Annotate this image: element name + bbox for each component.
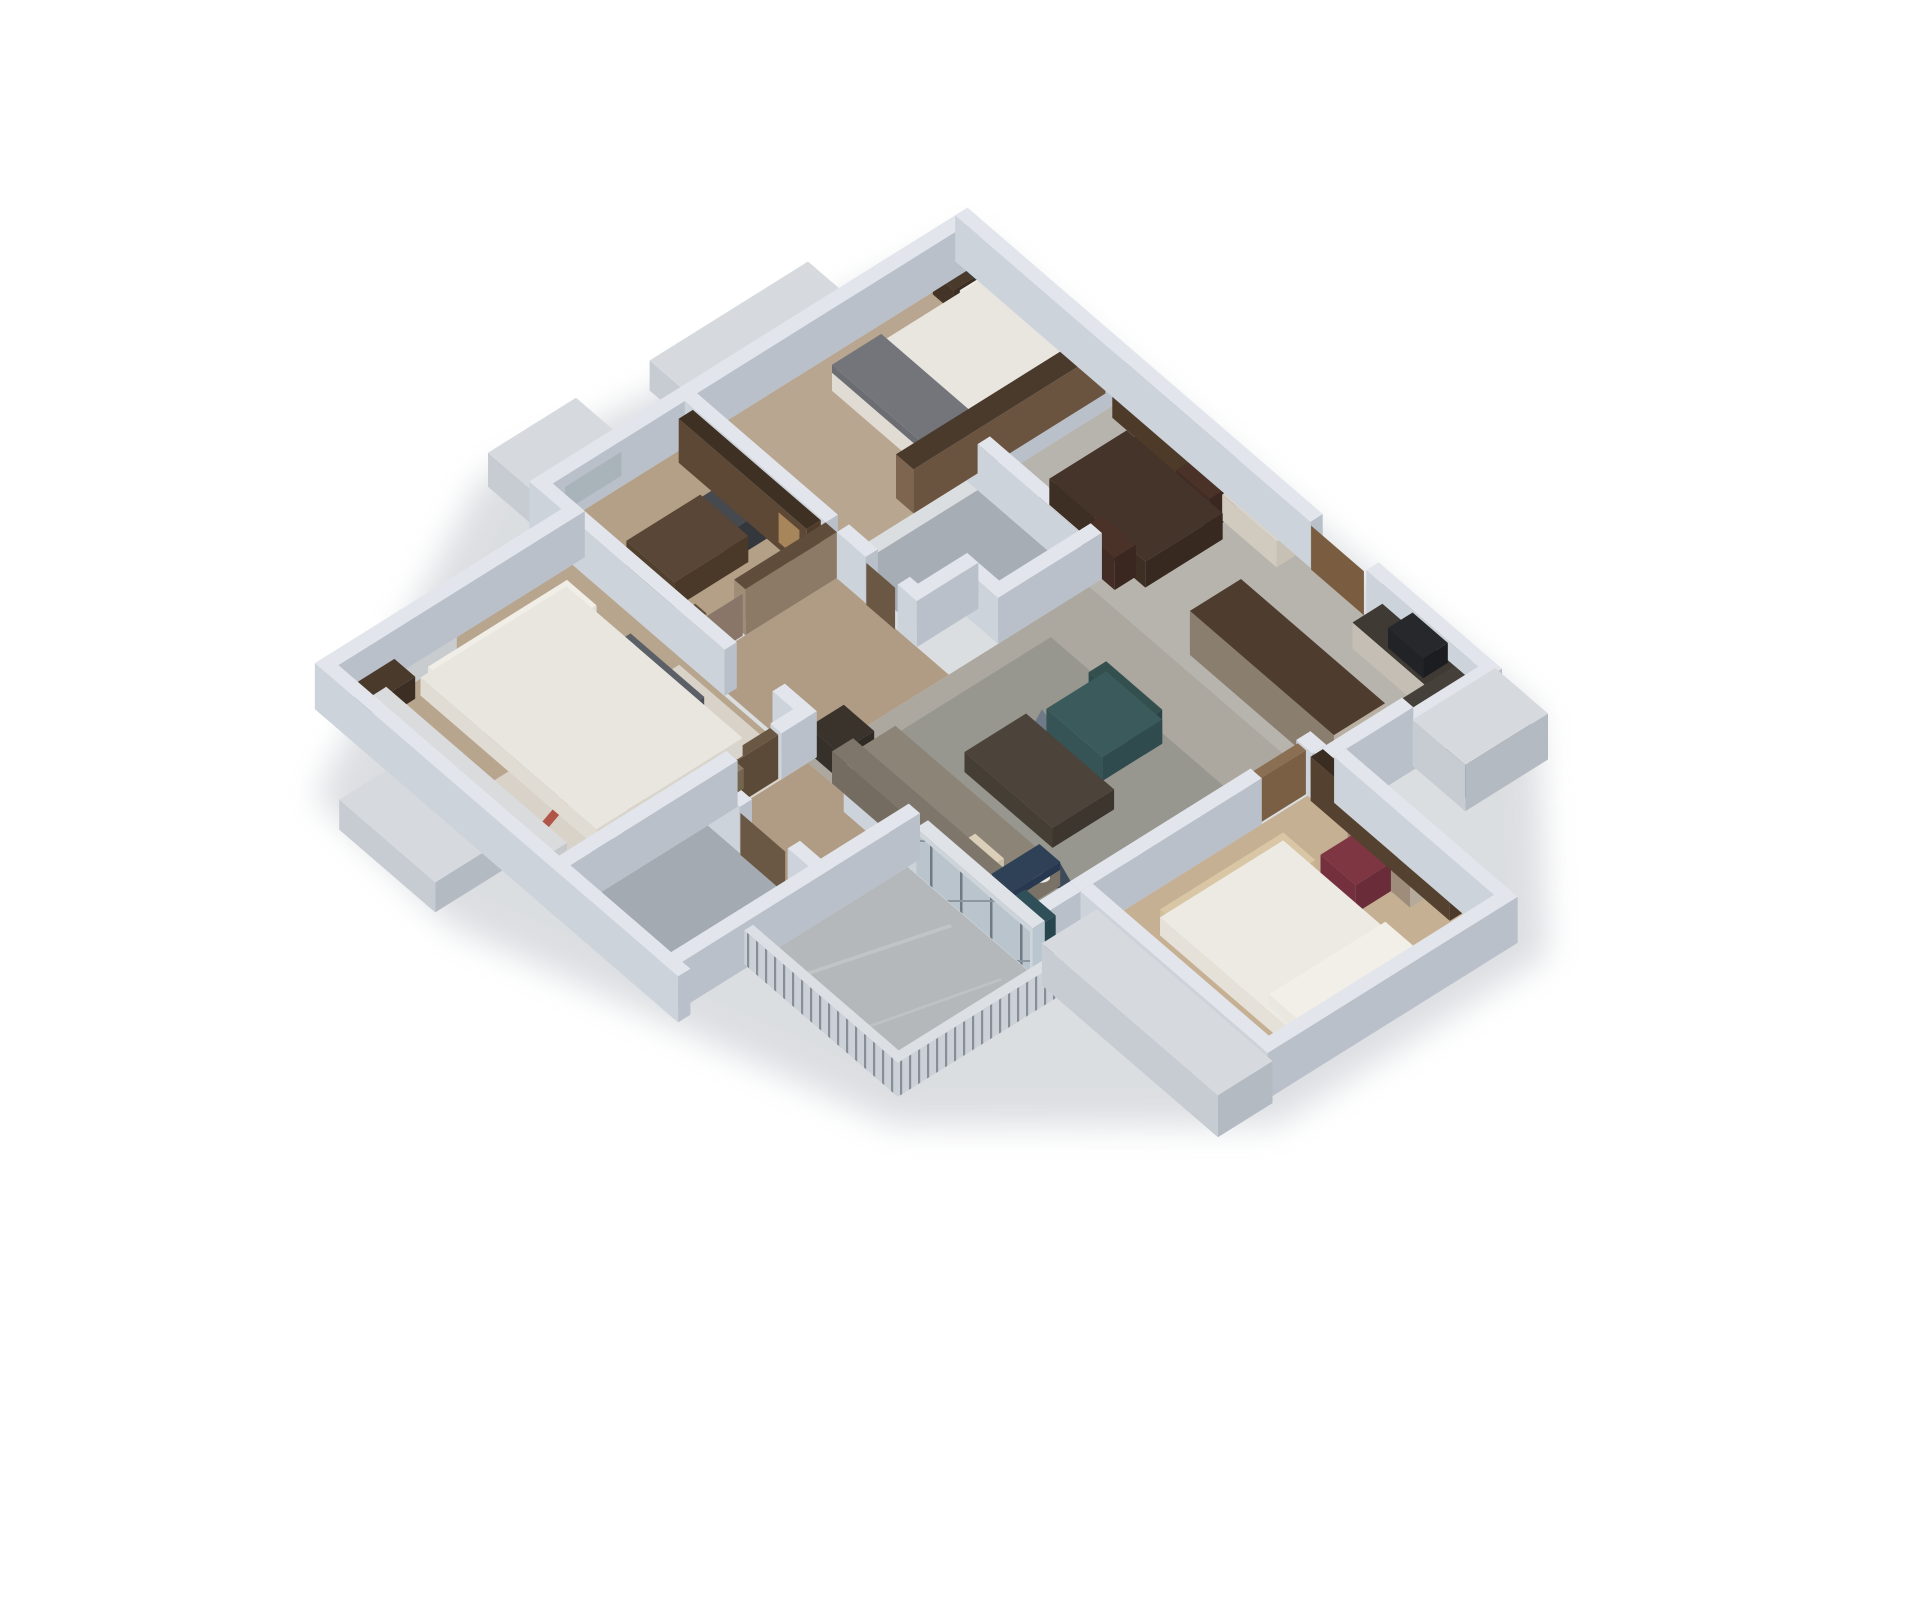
wall-bath-s-side xyxy=(987,588,998,644)
floor-plan-page xyxy=(0,0,1920,1617)
railing-balcony-se-side xyxy=(890,1056,898,1097)
wall-bath-notch-a-side xyxy=(906,591,917,647)
wall-master-sw-front xyxy=(678,969,690,1023)
wall-master-ne-a-front xyxy=(725,642,737,696)
floor-plan-3d-render xyxy=(0,0,1920,1617)
